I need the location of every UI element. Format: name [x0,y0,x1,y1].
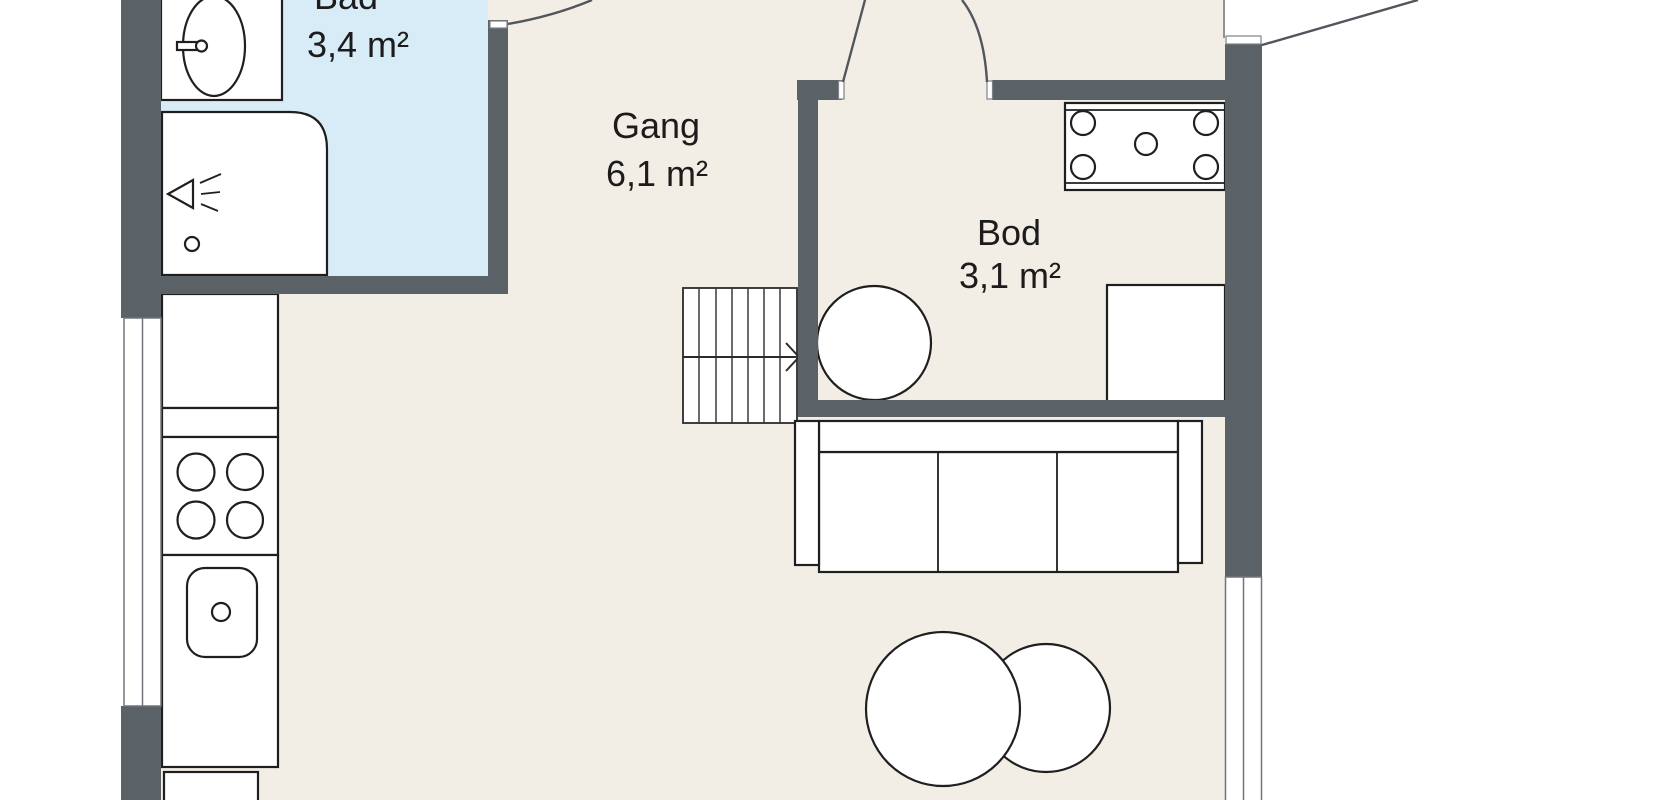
hallway-label: Gang [612,105,700,146]
sofa-seats [819,452,1178,572]
bathroom-bottom-wall [121,276,508,294]
bod-top-wall-left-stub [797,80,842,100]
exterior-wall-left-upper [121,0,161,318]
exterior-wall-left-lower [121,706,161,800]
burner-icon [227,502,263,538]
bathroom-area-label: 3,4 m² [307,24,409,65]
bod-top-wall [992,80,1262,100]
burner-icon [1194,111,1218,135]
sofa-icon [795,421,1202,572]
burner-icon [1071,155,1095,179]
double-door-jamb-left [839,81,845,99]
sofa-back [819,421,1178,452]
sofa-armrest-left [795,421,819,565]
kitchen-cabinet-lower [164,772,258,800]
entry-door-threshold [1226,36,1261,44]
floor-plan-page: Bad 3,4 m² Gang 6,1 m² Bod 3,1 m² [0,0,1670,800]
drain-icon [185,237,199,251]
burner-icon [227,454,263,490]
bod-left-wall [798,100,818,417]
entry-door-leaf-icon [1262,0,1418,45]
bathroom-right-wall [488,20,508,276]
burner-icon [1194,155,1218,179]
storage-label: Bod [977,212,1041,253]
window-left-icon [124,318,161,706]
staircase-icon [683,288,799,423]
burner-icon [178,454,215,491]
double-door-jamb-right [987,81,993,99]
burner-icon [178,502,215,539]
floor-plan-svg: Bad 3,4 m² Gang 6,1 m² Bod 3,1 m² [0,0,1670,800]
sink-drain-icon [212,603,230,621]
burner-icon [1071,111,1095,135]
sofa-armrest-right [1178,421,1202,563]
water-heater-icon [817,286,931,400]
kitchen-fixtures [162,294,278,800]
bathroom-label: Bad [314,0,378,17]
bod-bottom-wall [798,400,1262,417]
knob-icon [1135,133,1157,155]
storage-cabinet-icon [1107,285,1225,402]
kitchen-cabinet-icon [162,294,278,408]
window-right-icon [1226,577,1262,800]
kitchen-drawer [162,408,278,437]
cooktop-4-burners-icon [162,437,278,555]
storage-area-label: 3,1 m² [959,255,1061,296]
hallway-area-label: 6,1 m² [606,153,708,194]
round-table-large-icon [866,632,1020,786]
bathroom-door-jamb [490,21,507,28]
faucet-knob-icon [196,41,207,52]
exterior-wall-right [1225,44,1262,577]
